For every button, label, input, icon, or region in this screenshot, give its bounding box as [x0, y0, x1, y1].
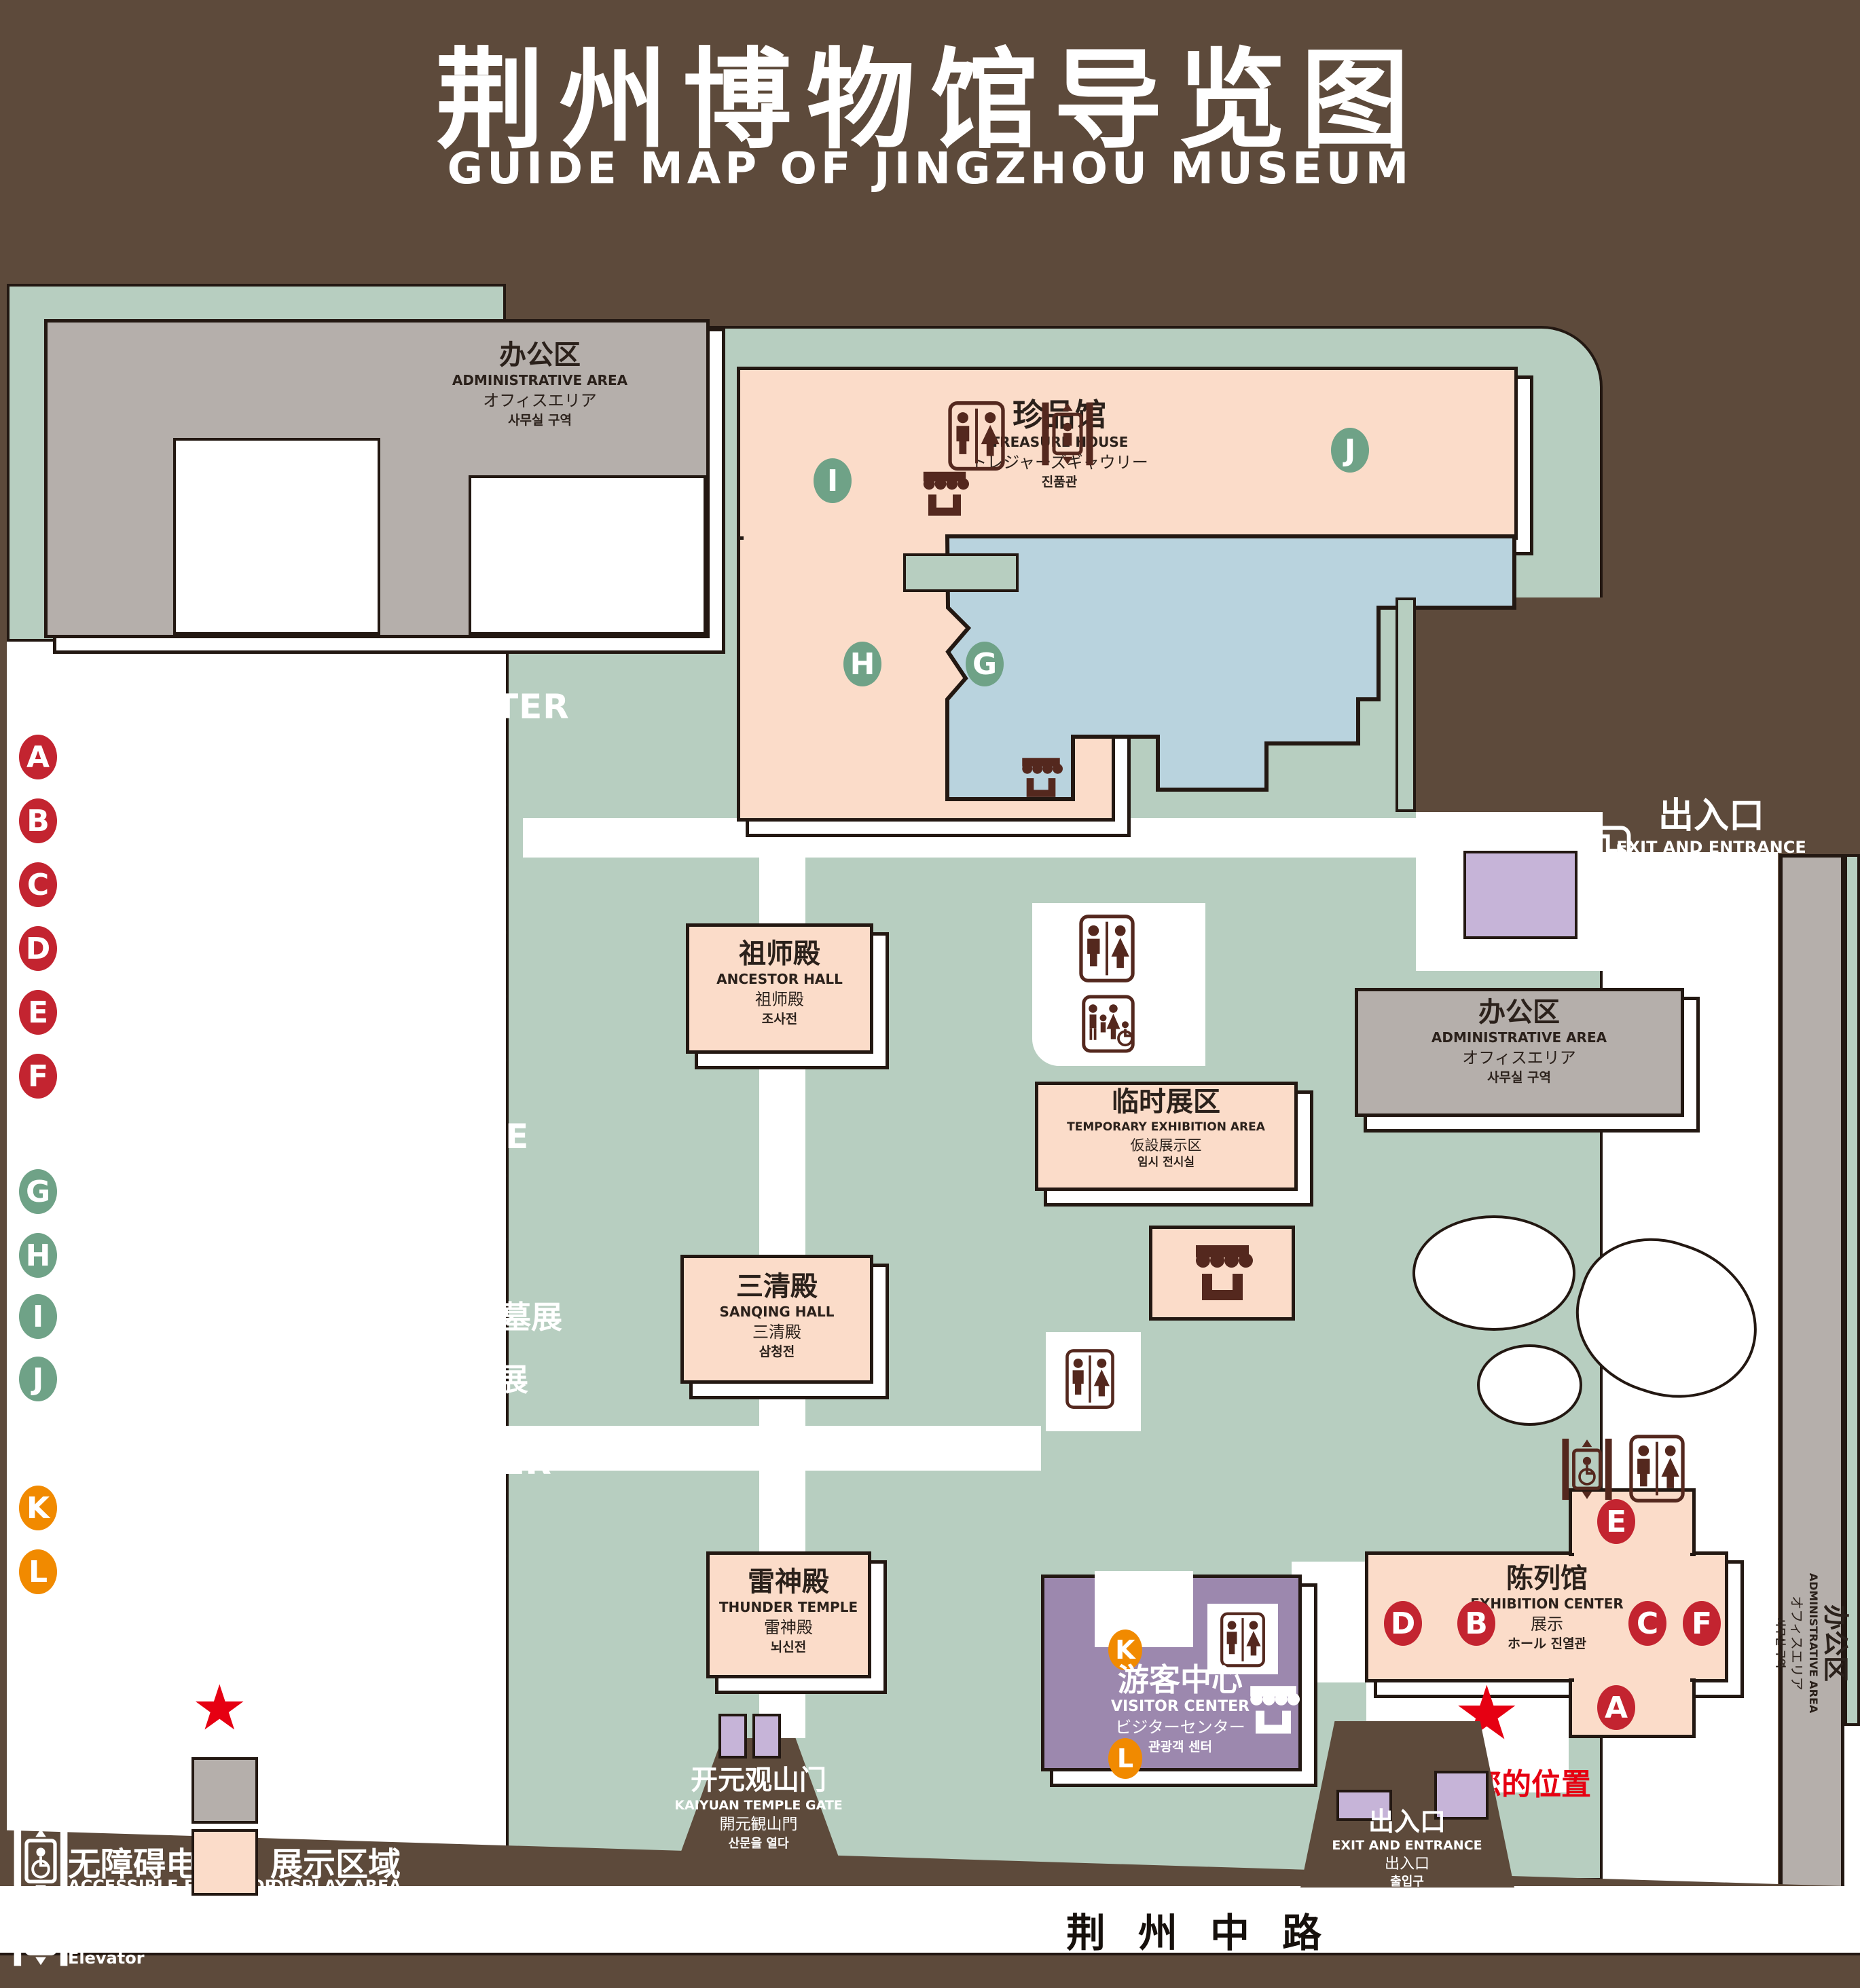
map-badge-C[interactable]: C [1628, 1601, 1666, 1646]
exit-south-label: 出入口 EXIT AND ENTRANCE 出入口 출입구 [1332, 1806, 1482, 1890]
restrooms-icon [12, 1678, 69, 1752]
restrooms-icon [1065, 1346, 1115, 1412]
restrooms-icon [1628, 1433, 1685, 1505]
building-admin-strip[interactable]: 办公区 ADMINISTRATIVE AREA オフィスエリア 사무실 구역 [1779, 854, 1844, 1894]
path-horizontal-south [506, 1426, 1041, 1471]
legend-badge-B: B [19, 798, 57, 843]
legend-badge-K: K [19, 1486, 57, 1530]
location-star: ★ [192, 1677, 247, 1739]
visitor-notch [1095, 1571, 1193, 1647]
legend-exit-en: EXIT AND ENTRANCE [270, 1654, 460, 1673]
page-subtitle: GUIDE MAP OF JINGZHOU MUSEUM [0, 144, 1860, 194]
legend-badge-G: G [19, 1169, 57, 1214]
legend-section-visitor-en: VISITOR CENTER [227, 1443, 552, 1482]
map-badge-E[interactable]: E [1597, 1499, 1635, 1544]
store-icon [1017, 755, 1065, 798]
green-rect-in-treasure [903, 553, 1019, 592]
elevator-icon [12, 1896, 69, 1970]
road-name: 荆州中路 [1066, 1901, 1354, 1958]
visitor-center-label: 游客中心 VISITOR CENTER ビジターセンター 관광객 센터 [1111, 1662, 1250, 1756]
map-badge-A[interactable]: A [1597, 1685, 1635, 1730]
map-badge-I[interactable]: I [814, 458, 852, 503]
gate-label: 开元观山门 KAIYUAN TEMPLE GATE 開元観山門 산문을 열다 [674, 1764, 843, 1852]
legend-restrooms-en: RESTROOMS [68, 1734, 183, 1753]
legend-section-treasure-en: TREASURE HOUSE [175, 1117, 529, 1156]
restrooms-icon [947, 399, 1006, 473]
map-badge-F[interactable]: F [1683, 1601, 1721, 1646]
store-icon [1244, 1682, 1302, 1735]
entrance-building-north [1463, 851, 1578, 939]
legend-badge-I: I [19, 1294, 57, 1339]
gate-pillar [752, 1714, 781, 1759]
store-icon [918, 468, 971, 517]
exhibition-center-label: 陈列馆 EXHIBITION CENTER 展示 ホール 진열관 [1470, 1563, 1624, 1653]
thunder-temple-label: 雷神殿 THUNDER TEMPLE 雷神殿 뇌신전 [719, 1566, 858, 1656]
garden-path [1412, 1215, 1575, 1331]
map-badge-H[interactable]: H [843, 642, 881, 686]
road-jingzhou-middle[interactable] [0, 1886, 1860, 1954]
admin-northwest-label: 办公区 ADMINISTRATIVE AREA オフィスエリア 사무실 구역 [452, 339, 627, 429]
exhibition-seam [1574, 1674, 1690, 1684]
restrooms-icon [1220, 1610, 1266, 1669]
accessible-elevator-icon [1561, 1434, 1613, 1505]
garden-path [1477, 1344, 1582, 1426]
map-badge-B[interactable]: B [1457, 1601, 1495, 1646]
display-swatch [192, 1829, 258, 1896]
admin-courtyard-a [173, 438, 380, 635]
office-swatch [192, 1757, 258, 1824]
legend-badge-C: C [19, 862, 57, 907]
admin-strip-label: 办公区 ADMINISTRATIVE AREA オフィスエリア 사무실 구역 [1773, 1572, 1850, 1713]
admin-east-label: 办公区 ADMINISTRATIVE AREA オフィスエリア 사무실 구역 [1432, 997, 1607, 1086]
exhibition-seam [1574, 1548, 1690, 1558]
legend-store-en: STORE [68, 1654, 128, 1673]
map-badge-G[interactable]: G [966, 642, 1004, 686]
guide-map-canvas: 荆州博物馆导览图 GUIDE MAP OF JINGZHOU MUSEUM 珍品… [0, 0, 1860, 1988]
legend-badge-E: E [19, 990, 57, 1035]
legend-office-en: OFFICE AREA [270, 1805, 390, 1824]
legend-badge-D: D [19, 926, 57, 971]
road-south-band [0, 1953, 1860, 1988]
store-icon [14, 1615, 68, 1666]
family-restrooms-icon [12, 1752, 69, 1820]
family-restrooms-icon [1081, 993, 1135, 1055]
legend-badge-F: F [19, 1054, 57, 1099]
ancestor-hall-label: 祖师殿 ANCESTOR HALL 祖师殿 조사전 [716, 938, 843, 1028]
legend-badge-H: H [19, 1233, 57, 1278]
elevator-icon [1040, 396, 1095, 472]
admin-courtyard-b [469, 475, 706, 635]
east-margin-lower [1844, 1725, 1860, 1888]
legend-elevator-en: Elevator [68, 1949, 145, 1968]
store-icon [1190, 1241, 1255, 1302]
legend-section-exhibition-en: EXHIBITION CENTER [175, 687, 570, 726]
map-badge-J[interactable]: J [1331, 428, 1369, 473]
legend-section-treasure: 珍品馆 [19, 1105, 170, 1178]
gate-pillar [718, 1714, 747, 1759]
legend-display-en: DISPLAY AREA [270, 1877, 401, 1896]
legend-badge-L: L [19, 1549, 57, 1594]
legend-badge-A: A [19, 735, 57, 779]
accessible-elevator-icon [12, 1824, 69, 1898]
legend-location-en: YOUR LOCATION [270, 1734, 418, 1753]
map-badge-D[interactable]: D [1384, 1601, 1422, 1646]
exhibition-west-notch [1292, 1562, 1365, 1682]
green-strip-east-of-treasure [1396, 597, 1416, 812]
restrooms-icon [1078, 913, 1135, 984]
temporary-exhibition-label: 临时展区 TEMPORARY EXHIBITION AREA 仮設展示区 임시 … [1067, 1086, 1265, 1170]
exit-north-label: 出入口 EXIT AND ENTRANCE 出入口 출입구 [1616, 796, 1806, 904]
legend-badge-J: J [19, 1357, 57, 1401]
sanqing-hall-label: 三清殿 SANQING HALL 三清殿 삼청전 [720, 1271, 835, 1361]
